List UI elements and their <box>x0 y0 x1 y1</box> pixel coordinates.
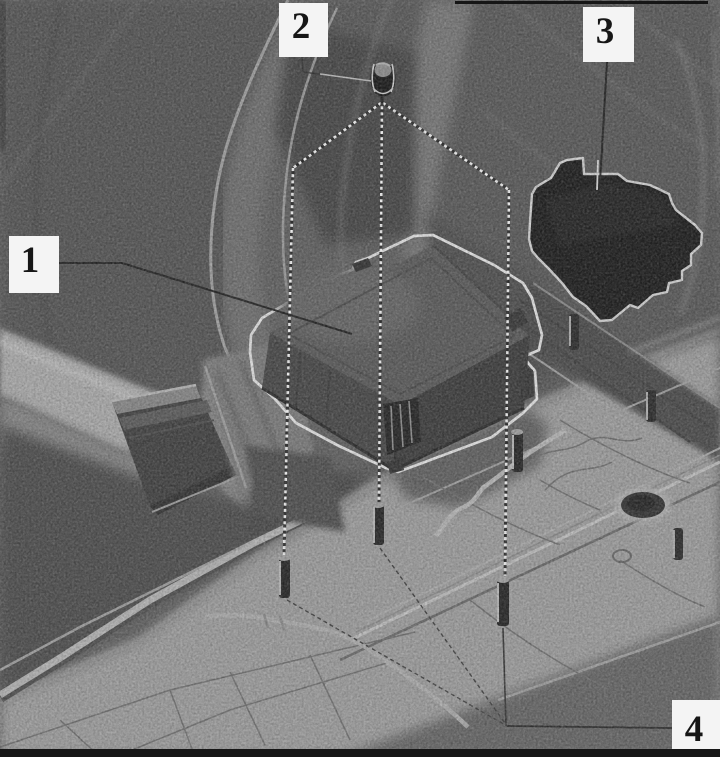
svg-text:1: 1 <box>21 240 40 281</box>
svg-text:2: 2 <box>292 6 311 47</box>
svg-text:3: 3 <box>596 11 615 52</box>
svg-text:4: 4 <box>685 709 704 750</box>
